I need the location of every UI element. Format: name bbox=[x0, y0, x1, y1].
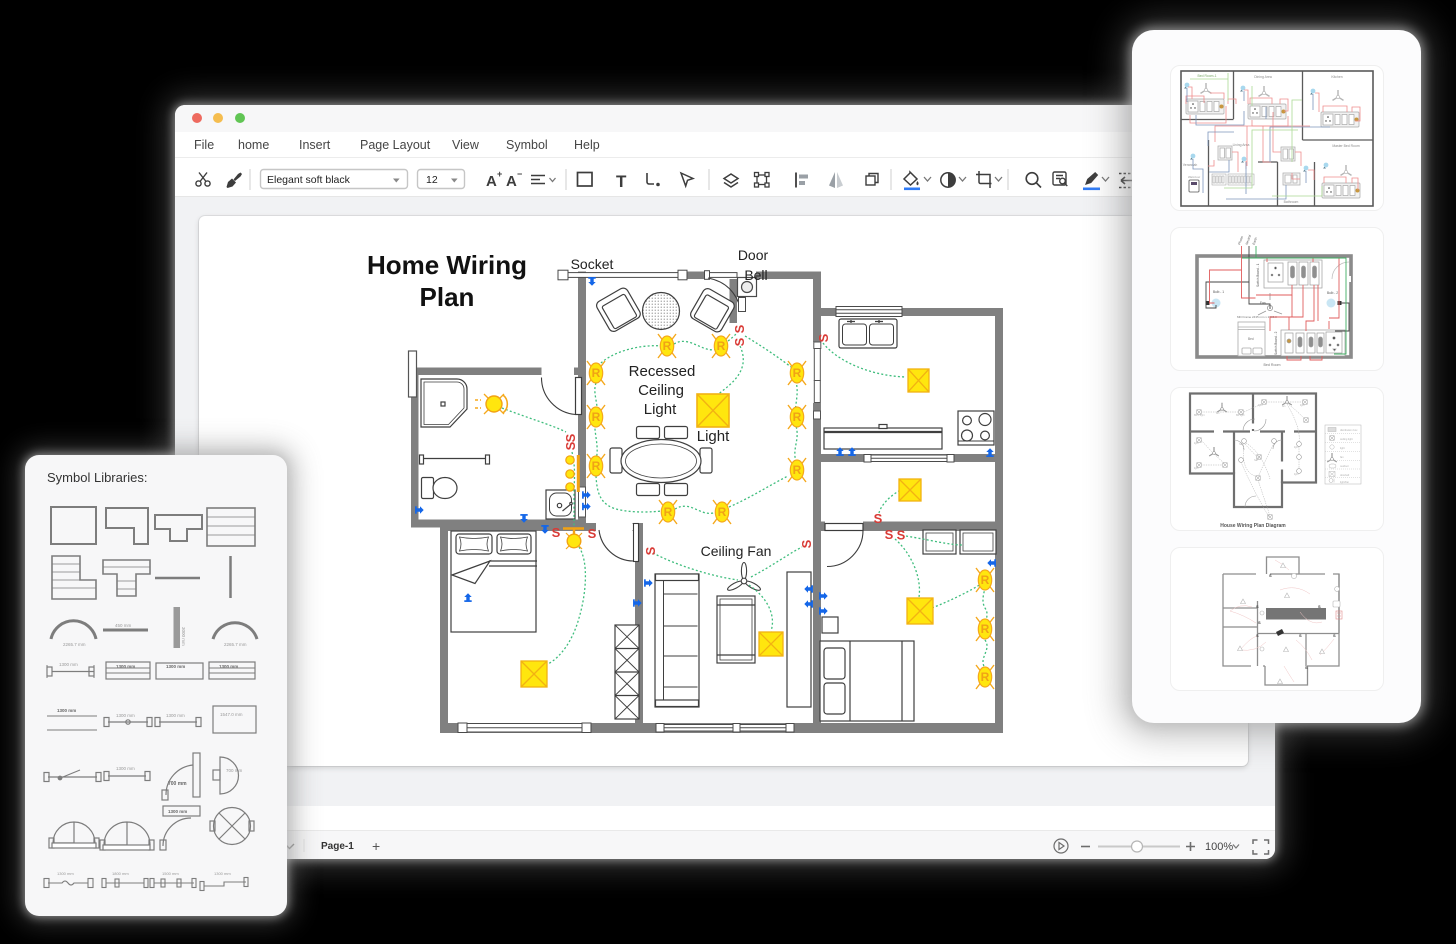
svg-text:Ceiling: Ceiling bbox=[638, 382, 684, 399]
svg-text:light/fan: light/fan bbox=[1340, 480, 1350, 484]
svg-text:outdoor: outdoor bbox=[1340, 464, 1349, 468]
svg-text:A: A bbox=[486, 173, 497, 190]
svg-text:Earth: Earth bbox=[1252, 237, 1258, 246]
svg-text:Kitchen: Kitchen bbox=[1331, 75, 1342, 79]
svg-text:Page-1: Page-1 bbox=[321, 841, 354, 852]
svg-text:3000 mm: 3000 mm bbox=[181, 627, 186, 646]
svg-text:1300 mm: 1300 mm bbox=[59, 662, 78, 667]
svg-text:S: S bbox=[1256, 604, 1259, 609]
svg-text:S: S bbox=[732, 337, 747, 346]
svg-text:S: S bbox=[885, 527, 894, 542]
svg-text:Light: Light bbox=[697, 428, 730, 445]
svg-text:Phase: Phase bbox=[1237, 235, 1244, 245]
svg-text:S: S bbox=[897, 528, 906, 543]
svg-text:S: S bbox=[732, 324, 747, 333]
svg-text:Socket: Socket bbox=[571, 256, 614, 272]
svg-text:+: + bbox=[497, 169, 502, 179]
svg-text:Bathroom: Bathroom bbox=[1284, 200, 1299, 204]
svg-text:1300 mm: 1300 mm bbox=[116, 766, 135, 771]
svg-text:700 mm: 700 mm bbox=[226, 768, 243, 773]
svg-text:fan: fan bbox=[1282, 405, 1286, 408]
svg-text:fan: fan bbox=[1340, 455, 1344, 459]
svg-text:hall: hall bbox=[1239, 443, 1243, 446]
svg-text:light: light bbox=[1194, 442, 1199, 445]
svg-text:light: light bbox=[1294, 446, 1299, 449]
svg-text:light: light bbox=[1194, 467, 1199, 470]
svg-text:ceiling light: ceiling light bbox=[1340, 437, 1353, 441]
svg-text:Ceiling Fan: Ceiling Fan bbox=[701, 543, 772, 559]
svg-text:Watt-hour: Watt-hour bbox=[1188, 175, 1200, 179]
svg-text:1300 mm: 1300 mm bbox=[166, 664, 185, 669]
svg-text:Master Bed Room: Master Bed Room bbox=[1332, 144, 1359, 148]
svg-text:Recessed: Recessed bbox=[629, 363, 696, 380]
svg-text:Bell: Bell bbox=[744, 267, 767, 283]
svg-text:1300 mm: 1300 mm bbox=[116, 713, 135, 718]
svg-text:Switch Board - 2: Switch Board - 2 bbox=[1274, 331, 1278, 355]
svg-text:1300 mm: 1300 mm bbox=[214, 871, 231, 876]
svg-text:S: S bbox=[563, 441, 578, 450]
svg-text:700 mm: 700 mm bbox=[168, 781, 187, 787]
svg-text:S: S bbox=[1299, 633, 1302, 638]
svg-text:S: S bbox=[588, 526, 597, 541]
svg-text:Switch Board - 1: Switch Board - 1 bbox=[1256, 263, 1260, 287]
svg-text:Bed Room-1: Bed Room-1 bbox=[1197, 74, 1216, 78]
svg-text:hall: hall bbox=[1254, 459, 1258, 462]
svg-text:T: T bbox=[616, 172, 627, 191]
svg-text:+: + bbox=[372, 838, 380, 854]
svg-text:S: S bbox=[874, 511, 883, 526]
svg-text:450 mm: 450 mm bbox=[115, 623, 132, 628]
svg-text:Verandah: Verandah bbox=[1183, 163, 1198, 167]
svg-text:Light: Light bbox=[644, 401, 677, 418]
svg-text:S: S bbox=[816, 333, 831, 342]
svg-text:S: S bbox=[643, 546, 658, 555]
svg-text:S: S bbox=[1333, 633, 1336, 638]
svg-text:Bed: Bed bbox=[1248, 337, 1254, 341]
svg-text:doorbell: doorbell bbox=[1340, 473, 1350, 477]
svg-text:distribution box: distribution box bbox=[1340, 428, 1358, 432]
svg-text:S: S bbox=[563, 433, 578, 442]
svg-text:S: S bbox=[1318, 604, 1321, 609]
svg-text:S: S bbox=[552, 525, 561, 540]
svg-text:1300 mm: 1300 mm bbox=[57, 708, 76, 713]
svg-text:light: light bbox=[1294, 473, 1299, 476]
svg-text:BR-1 light: BR-1 light bbox=[1194, 414, 1205, 417]
svg-text:Plan: Plan bbox=[420, 282, 475, 312]
svg-text:1300 mm: 1300 mm bbox=[166, 713, 185, 718]
svg-text:2265.7 mm: 2265.7 mm bbox=[224, 642, 247, 647]
svg-text:S: S bbox=[1269, 573, 1272, 578]
svg-text:Bed Room: Bed Room bbox=[1264, 363, 1281, 367]
svg-text:S: S bbox=[1305, 665, 1308, 670]
svg-text:light: light bbox=[1340, 446, 1345, 450]
svg-text:1800 mm: 1800 mm bbox=[112, 871, 129, 876]
svg-text:fan: fan bbox=[1216, 412, 1220, 415]
svg-text:Door: Door bbox=[738, 247, 769, 263]
svg-text:S: S bbox=[1256, 633, 1259, 638]
svg-text:−: − bbox=[517, 169, 522, 179]
svg-text:S: S bbox=[1258, 620, 1261, 625]
svg-text:1300 mm: 1300 mm bbox=[57, 871, 74, 876]
svg-text:A: A bbox=[506, 173, 517, 190]
svg-text:Elegant soft black: Elegant soft black bbox=[267, 174, 351, 186]
svg-text:1500 mm: 1500 mm bbox=[162, 871, 179, 876]
svg-text:Bulb - 1: Bulb - 1 bbox=[1213, 290, 1224, 294]
svg-text:House Wiring Plan Diagram: House Wiring Plan Diagram bbox=[1220, 523, 1286, 529]
svg-text:light: light bbox=[1258, 404, 1263, 407]
svg-text:light: light bbox=[1300, 404, 1305, 407]
svg-text:1300 mm: 1300 mm bbox=[168, 809, 187, 814]
svg-text:Dining Area: Dining Area bbox=[1254, 75, 1272, 79]
svg-text:Home Wiring: Home Wiring bbox=[367, 250, 527, 280]
svg-text:2265.7 mm: 2265.7 mm bbox=[63, 642, 86, 647]
svg-text:Bulb - 2: Bulb - 2 bbox=[1327, 291, 1338, 295]
svg-text:1547.0 mm: 1547.0 mm bbox=[220, 712, 243, 717]
svg-text:S: S bbox=[799, 539, 814, 548]
svg-text:12: 12 bbox=[426, 174, 438, 186]
svg-text:BR light: BR light bbox=[1236, 414, 1245, 417]
svg-text:100%: 100% bbox=[1205, 841, 1233, 853]
